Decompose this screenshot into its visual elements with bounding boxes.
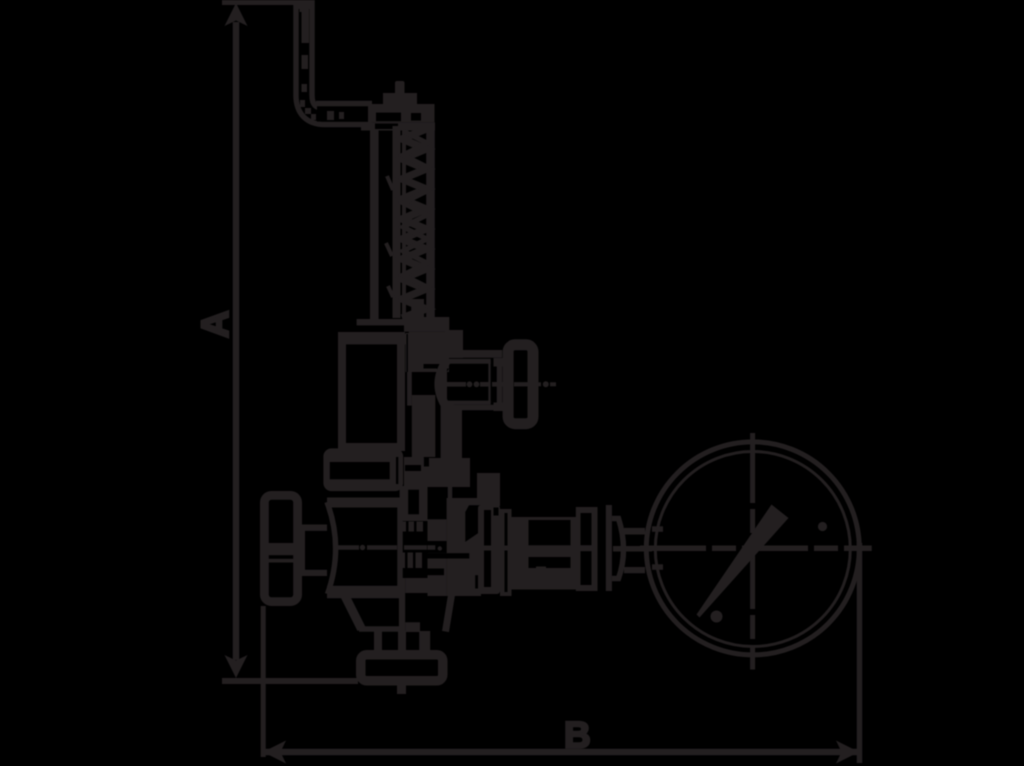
svg-text:B: B — [564, 715, 591, 756]
svg-text:A: A — [195, 311, 237, 338]
